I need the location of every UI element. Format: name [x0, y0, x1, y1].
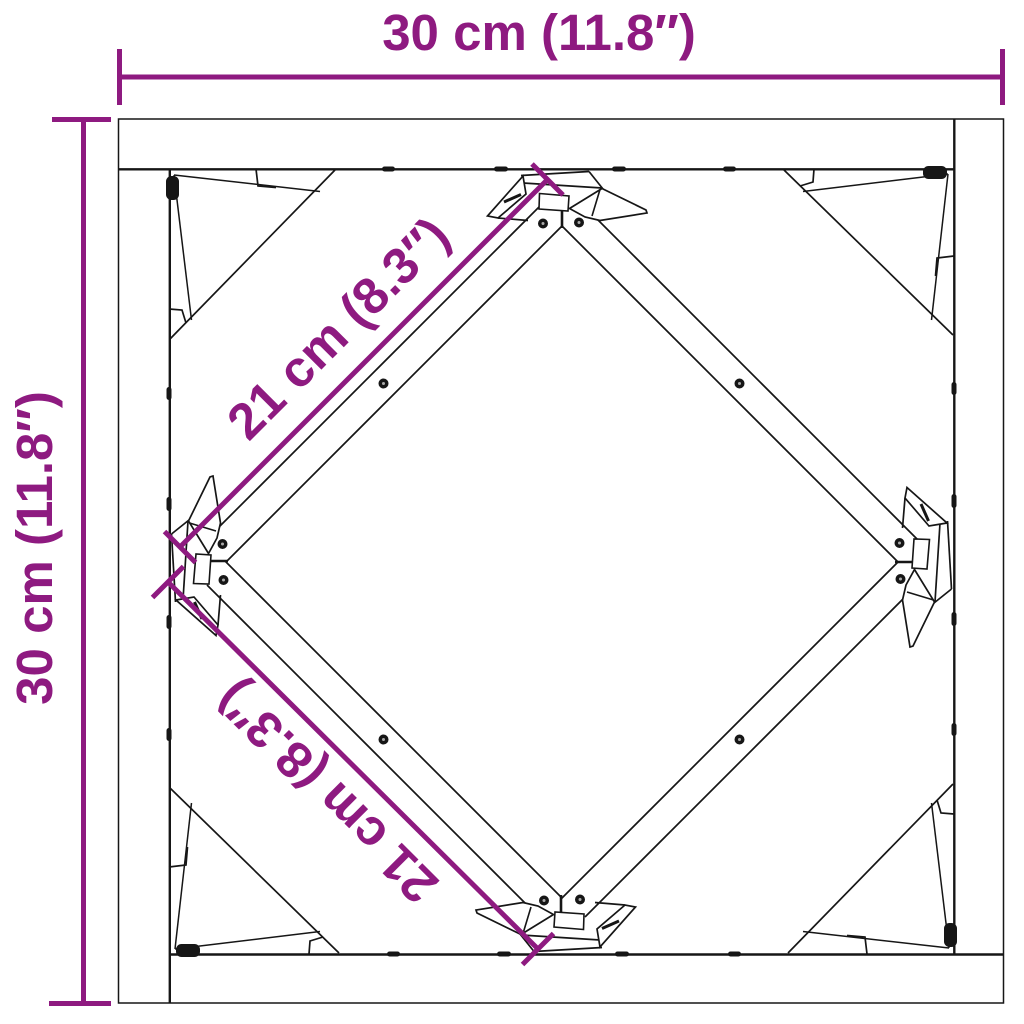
svg-text:30 cm (11.8″): 30 cm (11.8″)	[382, 4, 696, 61]
svg-text:30 cm (11.8″): 30 cm (11.8″)	[6, 391, 63, 705]
